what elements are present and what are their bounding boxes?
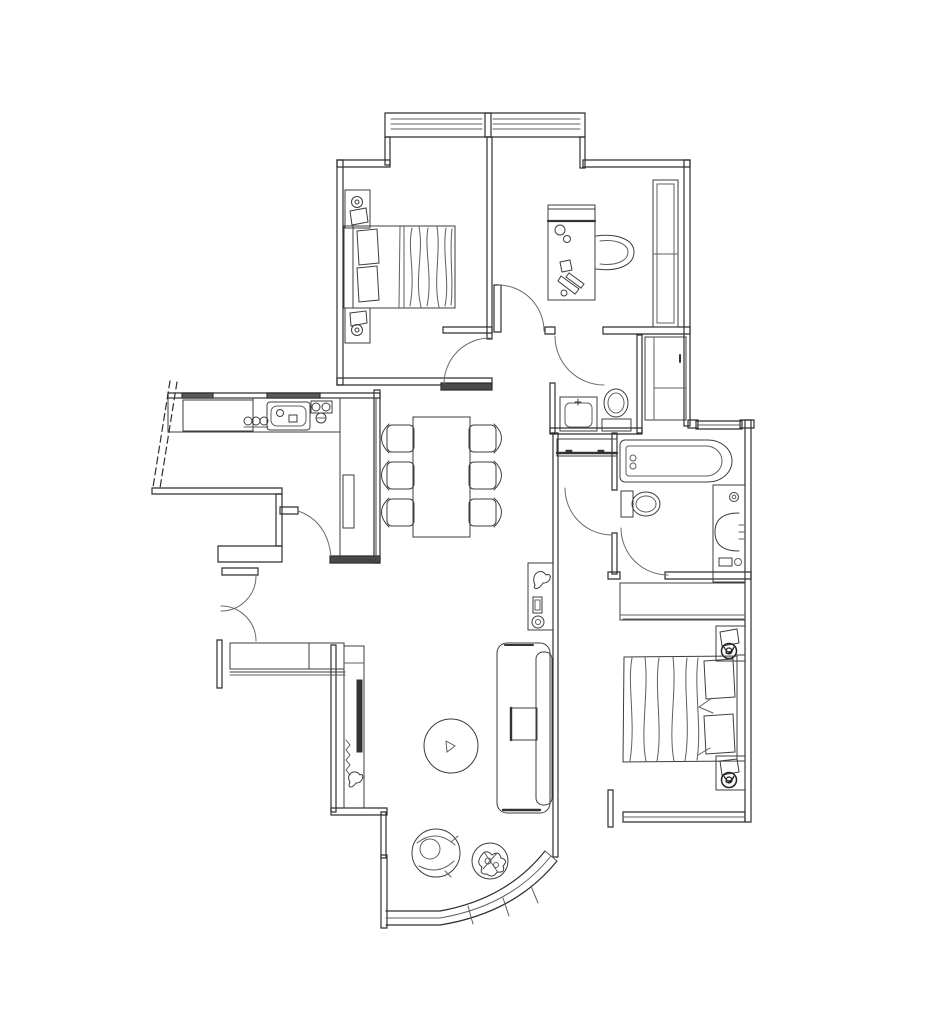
window-master-bathroom: [696, 421, 742, 429]
door-kitchen: [280, 507, 331, 556]
door-bedroom1: [444, 338, 490, 384]
study-wardrobe: [653, 180, 678, 327]
study-office-chair: [596, 235, 634, 269]
dining-chairs: [382, 424, 502, 527]
bathroom-small-sink: [560, 397, 597, 431]
living-coffee-table: [424, 719, 478, 773]
master-bathroom-tub: [620, 440, 732, 482]
hallway-console: [528, 563, 553, 630]
bedroom2-wardrobe: [620, 583, 745, 620]
door-bedroom2: [621, 528, 668, 575]
exterior-and-interior-walls: [152, 137, 754, 928]
door-entry-double: [221, 568, 258, 641]
bedroom1-nightstand-bottom: [345, 308, 370, 343]
dining-table: [413, 417, 470, 537]
floor-plan-svg: [0, 0, 951, 1024]
master-bathroom-vanity: [713, 485, 745, 582]
living-sofa: [497, 643, 552, 813]
bedroom1-bed: [344, 226, 455, 308]
study-desk: [548, 205, 595, 300]
living-plant-small: [472, 843, 508, 879]
bathroom-small-toilet: [602, 389, 631, 431]
door-bathroom-small: [555, 336, 604, 385]
kitchen-sink: [267, 402, 310, 430]
kitchen-stove: [311, 401, 332, 423]
master-bathroom-toilet: [621, 491, 660, 517]
hall-closet: [645, 337, 686, 420]
door-study: [494, 285, 544, 332]
bedroom1-nightstand-top: [345, 190, 370, 228]
living-plant-large: [412, 829, 460, 877]
window-curved-south: [386, 851, 557, 925]
window-bedroom2-south: [623, 812, 745, 822]
kitchen-dish-rack: [244, 417, 268, 427]
bedroom2-bed: [623, 655, 745, 762]
window-bay-north: [385, 113, 585, 168]
entry-shoe-cabinet: [230, 643, 345, 675]
door-master-bathroom: [565, 488, 612, 535]
kitchen-counter: [168, 398, 376, 560]
floor-plan-page: [0, 0, 951, 1024]
bathroom-small-cabinet: [557, 439, 617, 456]
living-tv-console: [344, 646, 364, 808]
